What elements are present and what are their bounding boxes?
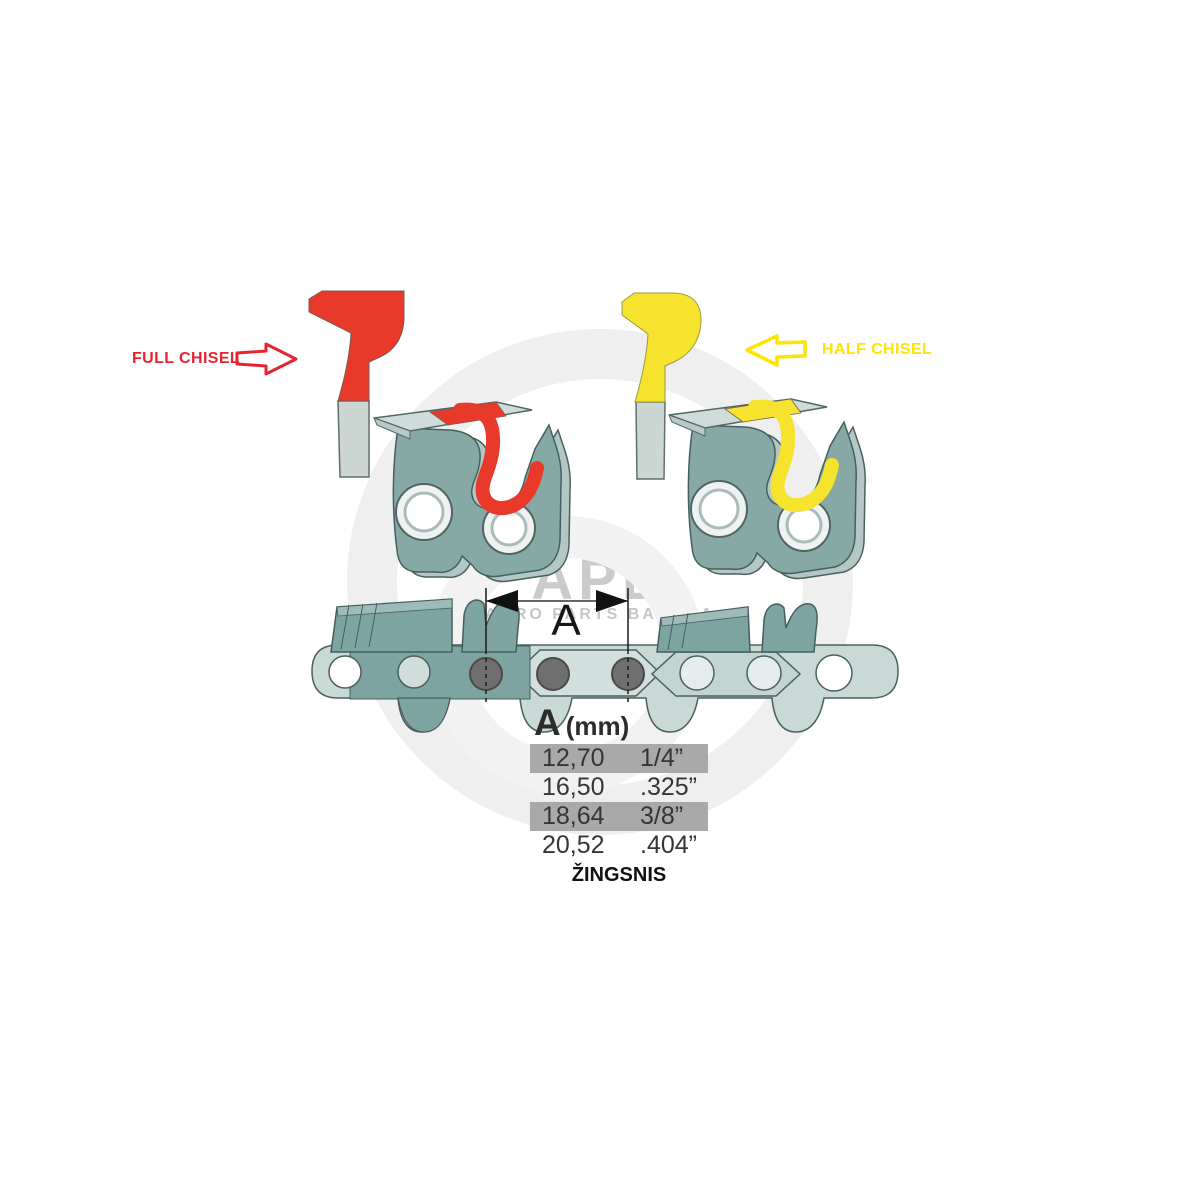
link-hole [680, 656, 714, 690]
table-row: 12,70 1/4” [530, 744, 708, 773]
pitch-mm-value: 16,50 [530, 773, 640, 802]
dimension-arrowhead-right [596, 590, 628, 612]
pitch-table-header-unit: (mm) [566, 711, 630, 741]
pitch-table: 12,70 1/4” 16,50 .325” 18,64 3/8” 20,52 … [530, 744, 708, 860]
half-chisel-arrow-icon [747, 336, 805, 365]
link-hole [329, 656, 361, 688]
pitch-inch-value: 1/4” [640, 744, 708, 773]
link-hole [747, 656, 781, 690]
pitch-table-header-letter: A [534, 702, 561, 743]
rivet [537, 658, 569, 690]
full-chisel-label: FULL CHISEL [132, 350, 240, 368]
link-hole [398, 656, 430, 688]
pitch-mm-value: 12,70 [530, 744, 640, 773]
half-chisel-label: HALF CHISEL [822, 341, 932, 359]
pitch-caption: ŽINGSNIS [530, 864, 708, 887]
pitch-mm-value: 20,52 [530, 831, 640, 860]
dimension-letter: A [536, 596, 596, 646]
pitch-mm-value: 18,64 [530, 802, 640, 831]
table-row: 20,52 .404” [530, 831, 708, 860]
chainsaw-chain-pitch-diagram: APB AGRO PARTS BALTIJA [0, 0, 1188, 1188]
table-row: 16,50 .325” [530, 773, 708, 802]
table-row: 18,64 3/8” [530, 802, 708, 831]
pitch-inch-value: .325” [640, 773, 708, 802]
link-hole [816, 655, 852, 691]
pitch-inch-value: 3/8” [640, 802, 708, 831]
pitch-table-header: A(mm) [534, 702, 629, 744]
full-chisel-arrow-icon [237, 344, 296, 374]
pitch-inch-value: .404” [640, 831, 708, 860]
illustration-svg [0, 0, 1188, 1188]
full-chisel-cutter-link [374, 402, 570, 582]
